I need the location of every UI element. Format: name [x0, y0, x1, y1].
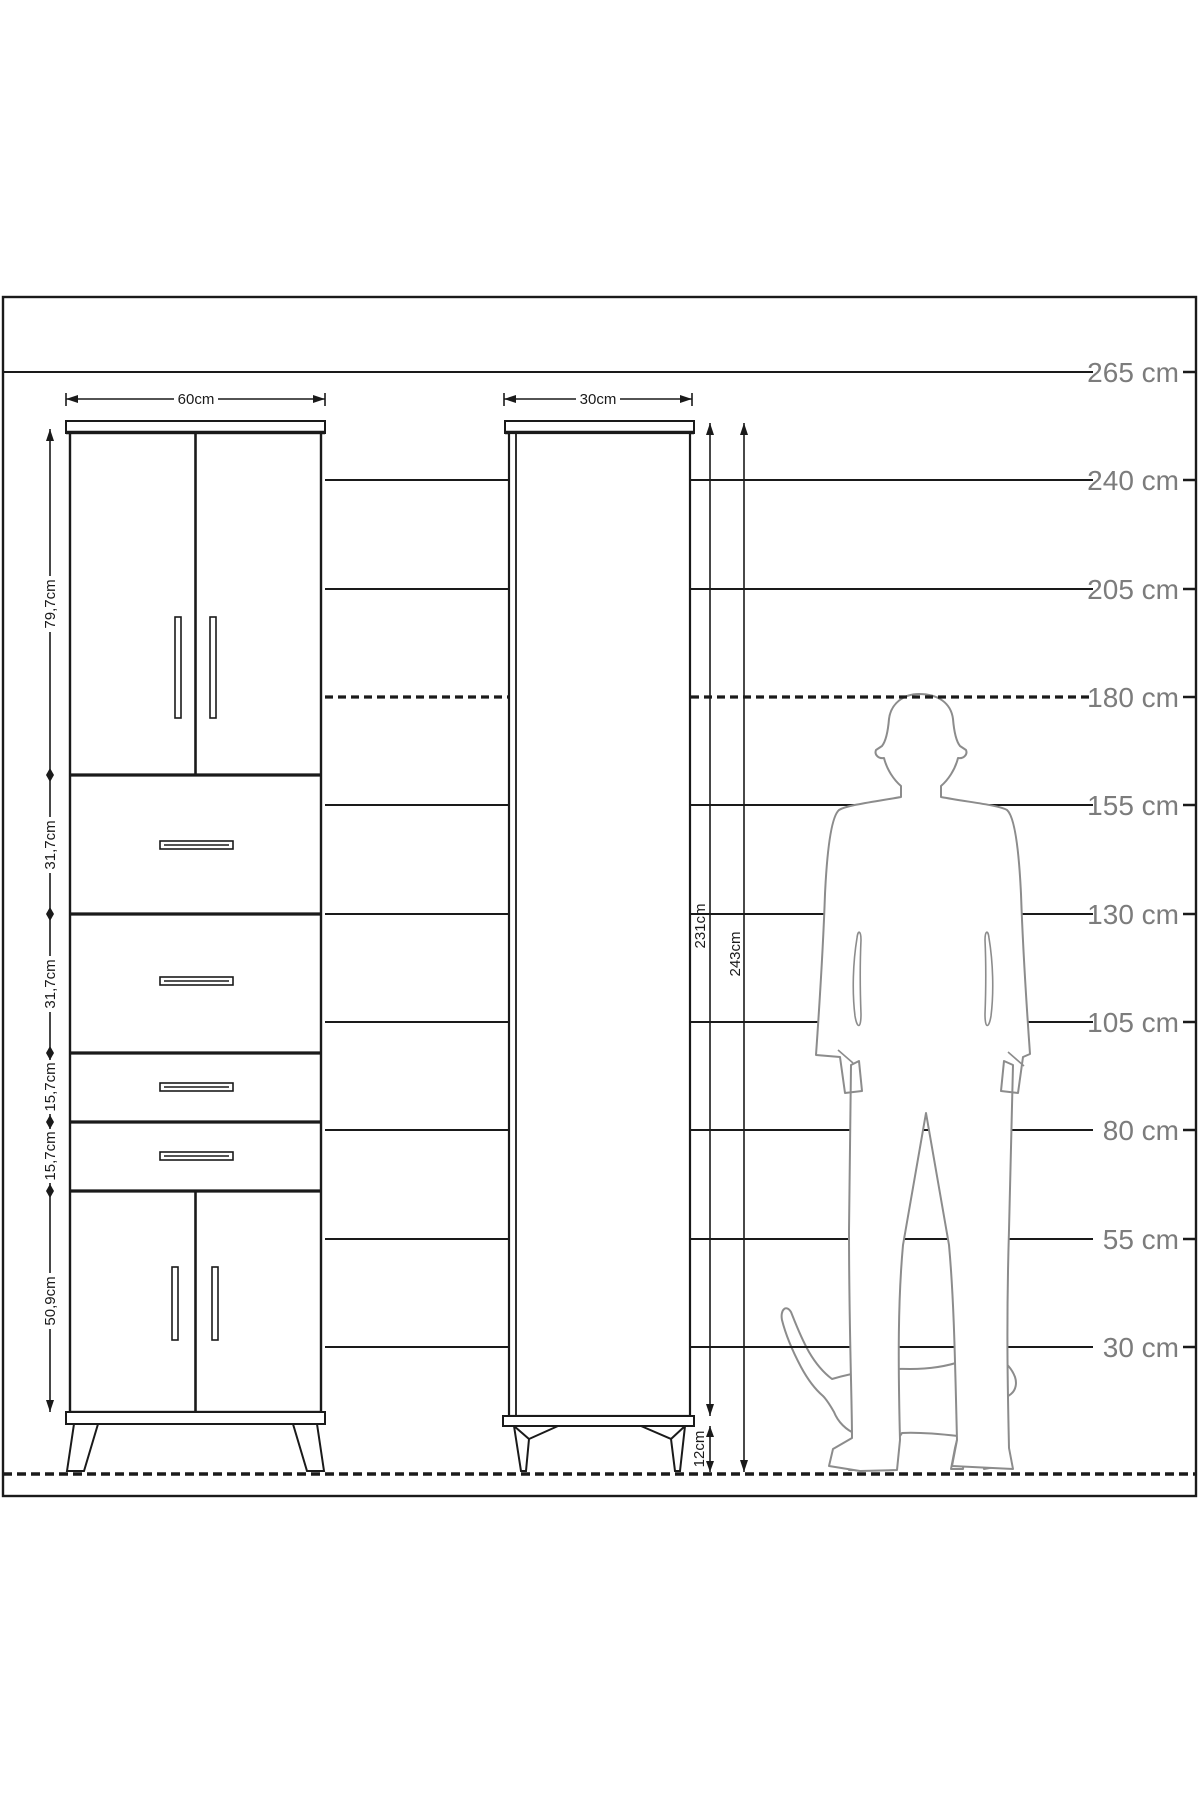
ruler-label-80: 80 cm [1103, 1115, 1179, 1146]
dimension-diagram: 265 cm 240 cm 205 cm 180 cm 155 cm 130 c… [0, 0, 1200, 1800]
ruler-label-ticks [1183, 372, 1196, 1347]
cabinet-large-bottom-board [66, 1412, 325, 1424]
ruler-label-130: 130 cm [1087, 899, 1179, 930]
ruler-label-205: 205 cm [1087, 574, 1179, 605]
ruler-label-30: 30 cm [1103, 1332, 1179, 1363]
ruler-label-265: 265 cm [1087, 357, 1179, 388]
man-silhouette [816, 694, 1030, 1471]
cabinet-large-width-label: 60cm [178, 391, 215, 408]
ruler-label-105: 105 cm [1087, 1007, 1179, 1038]
section-label-drawer2: 31,7cm [42, 959, 59, 1008]
ruler-label-180: 180 cm [1087, 682, 1179, 713]
ruler-label-155: 155 cm [1087, 790, 1179, 821]
cabinet-tall-width-label: 30cm [580, 391, 617, 408]
section-label-drawer3: 15,7cm [42, 1062, 59, 1111]
section-label-drawer4: 15,7cm [42, 1131, 59, 1180]
cabinet-large-left-leg [67, 1424, 98, 1471]
section-dimensions: 79,7cm 31,7cm 31,7cm 15,7cm 15,7cm 50,9c… [41, 429, 59, 1412]
section-label-doors-top: 79,7cm [42, 579, 59, 628]
cabinet-tall-bottom-board [503, 1416, 694, 1426]
upper-right-door-handle [210, 617, 216, 718]
cabinet-tall-body [509, 433, 690, 1416]
ruler-labels: 265 cm 240 cm 205 cm 180 cm 155 cm 130 c… [1087, 357, 1196, 1363]
cabinet-tall [503, 421, 694, 1471]
ruler-label-55: 55 cm [1103, 1224, 1179, 1255]
lower-right-door-handle [212, 1267, 218, 1340]
width-dimensions: 60cm 30cm [66, 390, 692, 408]
ruler-label-240: 240 cm [1087, 465, 1179, 496]
lower-left-door-handle [172, 1267, 178, 1340]
body-height-label: 231cm [692, 903, 709, 948]
cabinet-large [66, 421, 325, 1471]
section-label-doors-bottom: 50,9cm [42, 1276, 59, 1325]
height-dimensions: 231cm 243cm 12cm [691, 423, 748, 1472]
section-label-drawer1: 31,7cm [42, 820, 59, 869]
total-height-label: 243cm [727, 931, 744, 976]
cabinet-large-right-leg [293, 1424, 324, 1471]
drawing-canvas: 265 cm 240 cm 205 cm 180 cm 155 cm 130 c… [0, 0, 1200, 1800]
upper-left-door-handle [175, 617, 181, 718]
cabinet-tall-legs [514, 1426, 685, 1471]
leg-height-label: 12cm [691, 1431, 708, 1468]
